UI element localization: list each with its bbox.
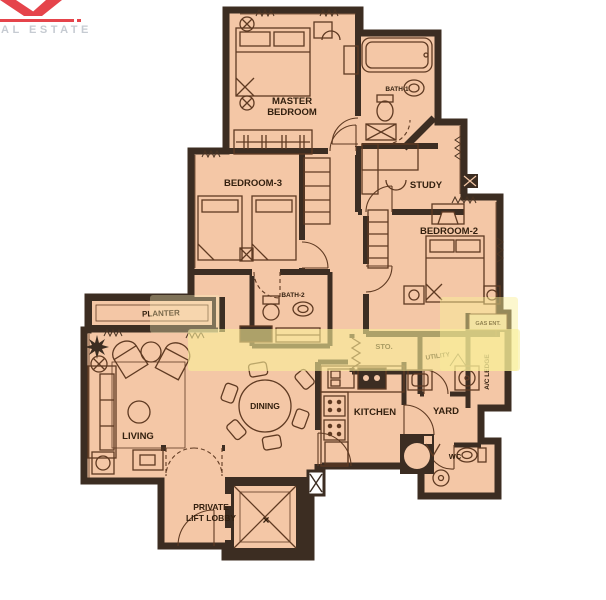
lift-x-marker: × xyxy=(262,513,269,527)
riser-box xyxy=(308,471,324,495)
label-gas-ent: GAS ENT. xyxy=(475,321,501,327)
label-bath1: BATH-1 xyxy=(385,86,409,93)
label-study: STUDY xyxy=(410,180,443,191)
logo-rule-dot xyxy=(77,19,81,22)
label-lobby-2: LIFT LOBBY xyxy=(186,513,236,523)
label-kitchen: KITCHEN xyxy=(354,407,396,418)
brand-text: AL ESTATE xyxy=(1,24,92,36)
label-living: LIVING xyxy=(122,431,154,442)
floorplan-page: MASTER BEDROOM BATH-1 BEDROOM-3 STUDY BE… xyxy=(0,0,606,600)
label-yard: YARD xyxy=(433,406,459,417)
brand-logo: AL ESTATE xyxy=(0,0,110,46)
label-sto: STO. xyxy=(375,342,392,351)
label-lobby-1: PRIVATE xyxy=(193,502,229,512)
label-wc: WC xyxy=(449,452,462,461)
brand-logo-mark xyxy=(0,0,110,24)
label-master-1: MASTER xyxy=(272,96,312,107)
label-planter: PLANTER xyxy=(142,308,180,318)
label-master-2: BEDROOM xyxy=(267,107,317,118)
logo-rule xyxy=(0,19,74,22)
floorplan-drawing: MASTER BEDROOM BATH-1 BEDROOM-3 STUDY BE… xyxy=(0,0,606,600)
ac-unit-box xyxy=(462,174,478,188)
label-ac-ledge: A/C LEDGE xyxy=(484,354,491,390)
label-bedroom3: BEDROOM-3 xyxy=(224,178,282,189)
building-outline xyxy=(84,10,508,557)
label-dining: DINING xyxy=(250,401,280,411)
basin-alcove xyxy=(400,434,434,474)
label-bedroom2: BEDROOM-2 xyxy=(420,226,478,237)
label-bath2: BATH-2 xyxy=(281,292,305,299)
logo-shape-right xyxy=(28,0,62,16)
